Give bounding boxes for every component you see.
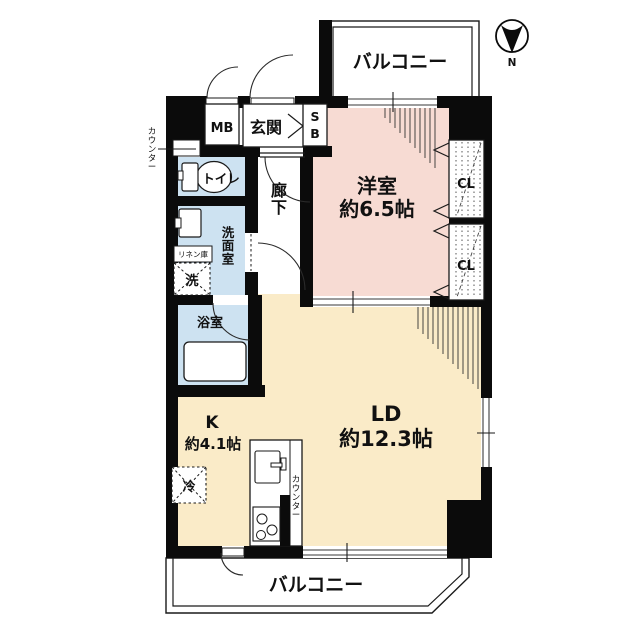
mb-door-arc — [207, 67, 238, 98]
wall-corridor-west-room — [300, 157, 313, 296]
washer-label: 洗 — [185, 273, 198, 289]
corridor-area: 廊下 — [258, 181, 305, 290]
ld-size: 約12.3帖 — [339, 427, 433, 451]
wall-top-5 — [437, 96, 451, 108]
wall-mb-left-block — [178, 96, 207, 145]
balcony-bottom: バルコニー — [166, 558, 469, 613]
wall-bath-bottom — [166, 385, 265, 397]
wall-bottom-1 — [166, 546, 222, 558]
ld-name: LD — [371, 402, 402, 426]
toilet-label: トイレ — [202, 171, 240, 186]
balcony-door-leaf — [222, 548, 244, 556]
wall-cl-divider — [449, 218, 492, 224]
wall-corridor-wet-lower — [245, 272, 258, 295]
balcony-bottom-label: バルコニー — [269, 574, 364, 596]
wall-bath-right — [248, 303, 262, 385]
window-ld-balcony-gap — [303, 546, 447, 558]
entrance-door-arc — [250, 55, 293, 98]
entrance-label: 玄関 — [250, 118, 282, 137]
wall-bottom-2 — [244, 546, 303, 558]
balcony-top: バルコニー — [327, 21, 479, 97]
wall-sb-bottom — [303, 146, 332, 157]
kitchen-counter-black — [280, 495, 290, 546]
entrance-step-line — [260, 153, 305, 157]
toilet-handle-icon — [178, 171, 183, 180]
compass: N — [496, 20, 528, 69]
wall-top-4 — [331, 96, 348, 108]
meter-box-label: MB — [211, 121, 234, 136]
vanity-sink-icon — [179, 209, 201, 237]
kitchen-faucet-spout-icon — [271, 463, 282, 467]
wall-partition-left — [300, 296, 313, 307]
wall-corridor-wet-upper — [245, 157, 258, 233]
wall-balcony-left — [319, 20, 332, 108]
toilet-tank-icon — [182, 163, 198, 191]
balcony-top-label: バルコニー — [353, 51, 448, 73]
wall-toilet-washroom — [178, 196, 245, 206]
kitchen-size: 約4.1帖 — [185, 435, 242, 453]
closet-lower-label: CL — [457, 259, 475, 274]
toilet-counter-label: カウンター — [148, 127, 157, 173]
kitchen-counter-label: カウンター — [292, 475, 301, 521]
shoe-box-label-b: B — [310, 126, 320, 141]
floor-plan: バルコニー バルコニー — [0, 0, 640, 639]
compass-north-label: N — [508, 57, 517, 69]
corridor-ld-door-arc — [258, 243, 305, 290]
washroom-label: 洗面室 — [222, 225, 235, 266]
western-room-size: 約6.5帖 — [339, 197, 414, 221]
vanity-faucet-icon — [175, 218, 181, 228]
shoe-box-label-s: S — [310, 109, 319, 124]
toilet-counter — [173, 140, 200, 156]
wall-washroom-bath-1 — [166, 295, 213, 305]
compass-needle-icon — [501, 25, 523, 53]
kitchen-name: K — [205, 413, 219, 433]
fridge-label: 冷 — [182, 479, 195, 495]
western-room-name: 洋室 — [357, 174, 397, 198]
bathtub-icon — [184, 342, 246, 381]
closet-upper-label: CL — [457, 177, 475, 192]
wall-cl-top-block — [449, 96, 492, 140]
bathroom-label: 浴室 — [197, 315, 223, 331]
corridor-label: 廊下 — [271, 181, 287, 217]
linen-storage-label: リネン庫 — [178, 249, 208, 259]
floor-plan-svg: バルコニー バルコニー — [0, 0, 640, 639]
wall-corner-block — [447, 500, 492, 558]
